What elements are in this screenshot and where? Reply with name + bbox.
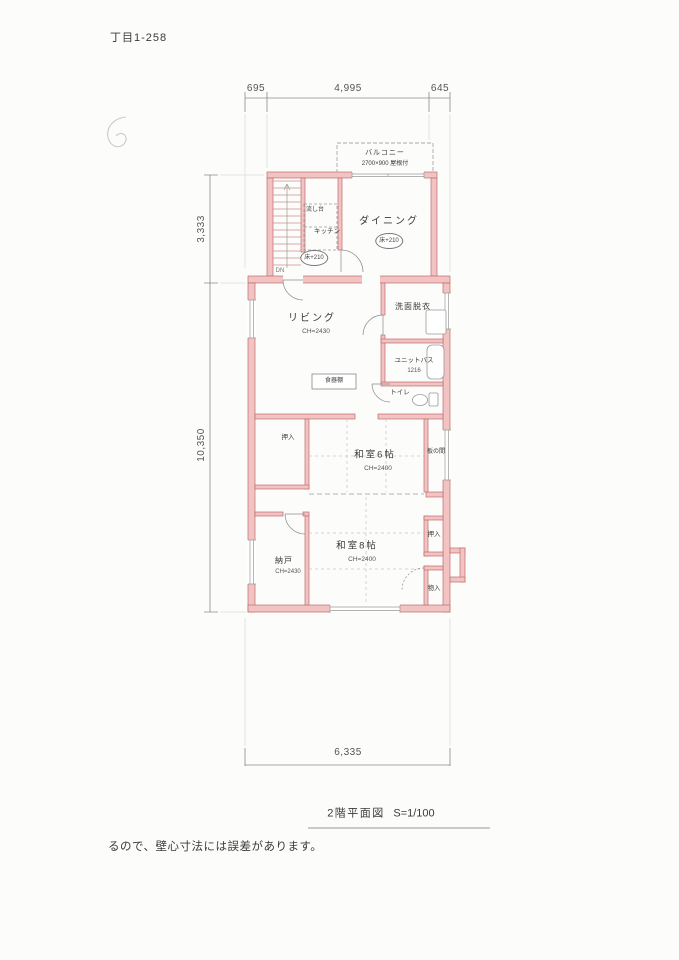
balcony-label: バルコニー — [365, 150, 405, 157]
drawing-title: 2階平面図 — [327, 809, 385, 820]
dim-top-645: 645 — [431, 84, 449, 94]
washroom-label: 洗面脱衣 — [395, 303, 431, 311]
dim-top-695: 695 — [247, 84, 265, 94]
kitchen-floor-level: 床+210 — [300, 250, 328, 266]
itanoma-label: 板の間 — [427, 449, 445, 455]
oshiire-upper-label: 押入 — [282, 435, 295, 442]
dim-left-3333: 3,333 — [197, 215, 207, 243]
floor-plan-sheet: 丁目1-258 695 4,995 645 3,333 10,350 6,335… — [0, 0, 679, 960]
nando-label: 納戸 — [275, 557, 293, 565]
living-label: リビング — [288, 314, 336, 324]
dim-bottom-6335: 6,335 — [334, 748, 362, 758]
dim-left-10350: 10,350 — [197, 428, 207, 462]
dim-top-4995: 4,995 — [334, 84, 362, 94]
stairs-dn-label: DN — [276, 268, 285, 274]
sketch-mark — [108, 117, 127, 147]
oshiire-right-label: 押入 — [428, 532, 441, 539]
cupboard-label: 食器棚 — [325, 378, 343, 384]
washing-machine — [426, 310, 446, 334]
dining-floor-level: 床+210 — [375, 233, 403, 249]
door-arcs — [283, 250, 424, 590]
sink-label: 流し台 — [306, 207, 324, 213]
bath-label: ユニットバス — [395, 358, 434, 365]
dining-label: ダイニング — [359, 217, 419, 227]
living-ch-label: CH=2430 — [302, 329, 330, 336]
drawing-scale: S=1/100 — [393, 809, 434, 820]
nando-ch-label: CH=2430 — [275, 569, 301, 575]
washitsu6-ch-label: CH=2400 — [364, 466, 392, 473]
bath-size-label: 1216 — [407, 368, 420, 374]
toilet-label: トイレ — [390, 390, 410, 397]
stairs — [273, 181, 301, 268]
toilet-bowl — [413, 395, 428, 406]
washitsu8-label: 和室8帖 — [336, 541, 378, 551]
toilet-tank — [429, 393, 438, 406]
washitsu8-ch-label: CH=2400 — [348, 557, 376, 564]
washitsu6-label: 和室6帖 — [354, 450, 396, 460]
dimension-lines — [204, 92, 450, 766]
tatami-lines — [309, 419, 424, 605]
balcony-size-label: 2700×900 屋根付 — [362, 161, 409, 167]
balcony-outline — [337, 143, 433, 173]
footer-note: るので、壁心寸法には誤差があります。 — [108, 842, 322, 854]
monoire-label: 物入 — [428, 586, 441, 593]
doc-number: 丁目1-258 — [110, 33, 167, 44]
kitchen-label: キッチン — [314, 229, 340, 236]
